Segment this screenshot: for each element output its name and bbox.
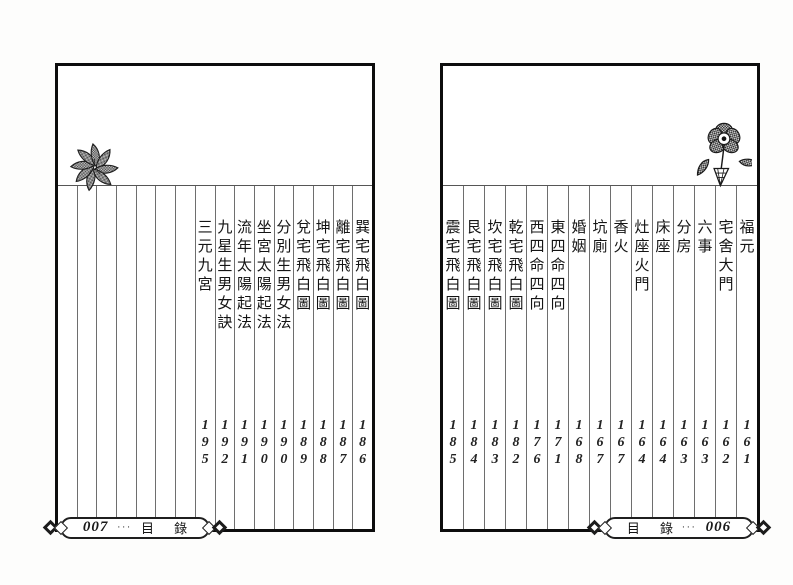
toc-column-empty <box>175 186 195 529</box>
toc-column-empty <box>96 186 116 529</box>
toc-entry-title: 坎宅飛白圖 <box>485 220 505 311</box>
toc-column: 艮宅飛白圖184 <box>463 186 484 529</box>
toc-column-empty <box>155 186 175 529</box>
toc-grid-right: 福元161宅舍大門162六事163分房163床座164灶座火門164香火167坑… <box>443 186 757 529</box>
toc-column-empty <box>136 186 156 529</box>
toc-column: 分別生男女法190 <box>274 186 294 529</box>
toc-column: 宅舍大門162 <box>715 186 736 529</box>
right-page: 福元161宅舍大門162六事163分房163床座164灶座火門164香火167坑… <box>440 63 760 532</box>
toc-entry-page: 192 <box>216 419 235 467</box>
folio-cartouche: 007 ··· 目 錄 <box>60 517 210 539</box>
toc-column: 兌宅飛白圖189 <box>293 186 313 529</box>
toc-entry-page: 161 <box>737 419 757 467</box>
toc-entry-page: 187 <box>334 419 353 467</box>
toc-entry-title: 六事 <box>695 220 715 254</box>
folio-page-number: 007 <box>83 519 109 536</box>
toc-entry-page: 171 <box>548 419 568 467</box>
toc-column: 乾宅飛白圖182 <box>505 186 526 529</box>
toc-entry-page: 168 <box>569 419 589 467</box>
toc-column: 坎宅飛白圖183 <box>484 186 505 529</box>
toc-entry-title: 乾宅飛白圖 <box>506 220 526 311</box>
folio-page-number: 006 <box>706 519 732 536</box>
toc-entry-title: 床座 <box>653 220 673 254</box>
toc-entry-page: 163 <box>674 419 694 467</box>
toc-entry-page: 189 <box>294 419 313 467</box>
left-folio: 007 ··· 目 錄 <box>44 514 226 541</box>
toc-entry-title: 宅舍大門 <box>716 220 736 292</box>
toc-entry-page: 182 <box>506 419 526 467</box>
toc-column: 坤宅飛白圖188 <box>313 186 333 529</box>
right-page-header <box>443 66 757 186</box>
toc-column: 婚姻168 <box>568 186 589 529</box>
toc-entry-title: 福元 <box>737 220 757 254</box>
toc-entry-page: 184 <box>464 419 484 467</box>
toc-entry-page: 176 <box>527 419 547 467</box>
toc-entry-page: 190 <box>255 419 274 467</box>
toc-entry-title: 巽宅飛白圖 <box>353 220 372 311</box>
toc-column-empty <box>77 186 97 529</box>
toc-column: 六事163 <box>694 186 715 529</box>
toc-entry-page: 183 <box>485 419 505 467</box>
folio-title: 目 錄 <box>627 518 673 537</box>
toc-entry-title: 分房 <box>674 220 694 254</box>
toc-entry-page: 185 <box>443 419 463 467</box>
leaf-cluster-icon <box>62 128 128 192</box>
toc-column: 福元161 <box>736 186 757 529</box>
toc-column: 離宅飛白圖187 <box>333 186 353 529</box>
toc-entry-page: 164 <box>632 419 652 467</box>
folio-dots: ··· <box>117 523 132 533</box>
toc-entry-title: 兌宅飛白圖 <box>294 220 313 311</box>
toc-column: 東四命四向171 <box>547 186 568 529</box>
toc-column: 坐宮太陽起法190 <box>254 186 274 529</box>
toc-entry-title: 東四命四向 <box>548 220 568 311</box>
toc-column: 震宅飛白圖185 <box>443 186 463 529</box>
diamond-ornament-icon <box>214 522 225 533</box>
toc-column: 床座164 <box>652 186 673 529</box>
toc-entry-page: 190 <box>275 419 294 467</box>
book-scan-canvas: 巽宅飛白圖186離宅飛白圖187坤宅飛白圖188兌宅飛白圖189分別生男女法19… <box>0 0 793 585</box>
toc-column-empty <box>58 186 77 529</box>
toc-grid-left: 巽宅飛白圖186離宅飛白圖187坤宅飛白圖188兌宅飛白圖189分別生男女法19… <box>58 186 372 529</box>
toc-column: 灶座火門164 <box>631 186 652 529</box>
toc-column: 流年太陽起法191 <box>234 186 254 529</box>
toc-entry-title: 分別生男女法 <box>275 220 294 330</box>
left-page: 巽宅飛白圖186離宅飛白圖187坤宅飛白圖188兌宅飛白圖189分別生男女法19… <box>55 63 375 532</box>
toc-column: 坑廁167 <box>589 186 610 529</box>
right-folio: 目 錄 ··· 006 <box>588 514 770 541</box>
toc-column: 香火167 <box>610 186 631 529</box>
toc-entry-title: 艮宅飛白圖 <box>464 220 484 311</box>
toc-column: 西四命四向176 <box>526 186 547 529</box>
toc-column: 三元九宮195 <box>195 186 215 529</box>
toc-entry-title: 流年太陽起法 <box>235 220 254 330</box>
toc-entry-page: 162 <box>716 419 736 467</box>
toc-entry-page: 186 <box>353 419 372 467</box>
toc-entry-title: 西四命四向 <box>527 220 547 311</box>
toc-entry-page: 191 <box>235 419 254 467</box>
folio-cartouche: 目 錄 ··· 006 <box>604 517 754 539</box>
toc-entry-title: 九星生男女訣 <box>216 220 235 330</box>
toc-entry-title: 離宅飛白圖 <box>334 220 353 311</box>
toc-entry-page: 163 <box>695 419 715 467</box>
toc-column: 巽宅飛白圖186 <box>352 186 372 529</box>
toc-entry-page: 164 <box>653 419 673 467</box>
toc-entry-title: 香火 <box>611 220 631 254</box>
left-page-header <box>58 66 372 186</box>
diamond-ornament-icon <box>758 522 769 533</box>
toc-entry-title: 灶座火門 <box>632 220 652 292</box>
toc-column: 九星生男女訣192 <box>215 186 235 529</box>
toc-entry-page: 167 <box>611 419 631 467</box>
toc-entry-title: 坑廁 <box>590 220 610 254</box>
toc-column-empty <box>116 186 136 529</box>
toc-entry-title: 坐宮太陽起法 <box>255 220 274 330</box>
rose-flower-icon <box>696 121 752 189</box>
toc-entry-title: 婚姻 <box>569 220 589 254</box>
toc-entry-title: 坤宅飛白圖 <box>314 220 333 311</box>
toc-entry-title: 震宅飛白圖 <box>443 220 463 311</box>
folio-title: 目 錄 <box>141 518 187 537</box>
toc-entry-page: 167 <box>590 419 610 467</box>
folio-dots: ··· <box>682 523 697 533</box>
toc-entry-title: 三元九宮 <box>196 220 215 292</box>
toc-entry-page: 188 <box>314 419 333 467</box>
toc-column: 分房163 <box>673 186 694 529</box>
toc-entry-page: 195 <box>196 419 215 467</box>
